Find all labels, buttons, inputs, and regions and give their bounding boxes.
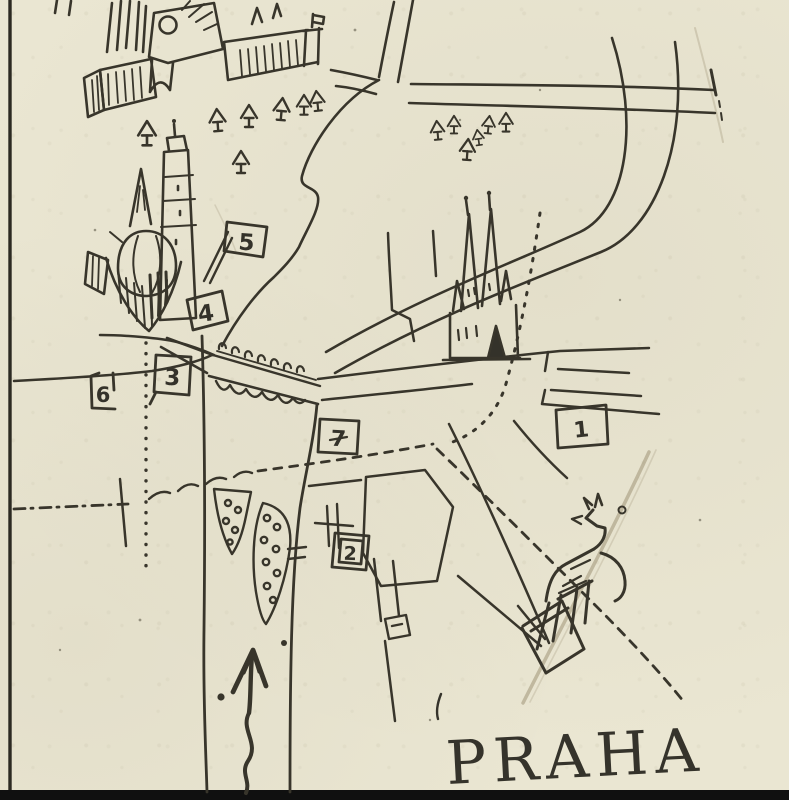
pine-tree-icon [233, 151, 249, 173]
street-lines-old-town [309, 231, 659, 721]
pine-tree-icon [472, 129, 485, 146]
marker-5-flag [204, 222, 267, 283]
flag-pole [204, 232, 232, 283]
frame-border [0, 0, 789, 800]
pine-tree-icon [209, 108, 226, 131]
pine-tree-icon [459, 138, 476, 160]
map-title: PRAHA [444, 715, 707, 798]
street-lines-left-bank [14, 335, 214, 576]
map-drawing: 5 4 3 6 7 1 2 PRAHA [0, 0, 789, 800]
marker-label-3: 3 [164, 365, 181, 392]
pine-tree-icon [297, 95, 311, 115]
pine-tree-icon [241, 105, 257, 127]
bridge-statues [219, 343, 304, 372]
pine-tree-icon [138, 121, 156, 145]
castle-complex-icon [84, 1, 324, 117]
map-title-group: PRAHA [437, 694, 707, 799]
tree-cluster-left [138, 90, 325, 173]
pine-tree-icon [481, 115, 496, 134]
pine-tree-icon [448, 116, 461, 134]
marker-label-5: 5 [238, 229, 256, 256]
bottom-bar [0, 790, 789, 800]
small-building-mark [385, 615, 410, 639]
pine-tree-icon [273, 97, 291, 120]
marker-label-1: 1 [572, 417, 590, 443]
marker-label-4: 4 [196, 300, 215, 328]
tree-cluster-right [430, 113, 513, 161]
pine-tree-icon [430, 120, 445, 140]
pine-tree-icon [499, 113, 513, 132]
marker-label-7: 7 [330, 427, 347, 453]
marker-label-2: 2 [343, 543, 357, 565]
north-arrow-icon [217, 640, 287, 793]
hand-drawn-prague-map: 5 4 3 6 7 1 2 PRAHA [0, 0, 789, 800]
pine-tree-icon [309, 90, 325, 111]
twin-spired-church-icon [443, 191, 530, 360]
dotted-route-line [14, 213, 684, 702]
marker-label-6: 6 [96, 383, 111, 407]
domed-church-with-tower-icon [85, 119, 196, 331]
